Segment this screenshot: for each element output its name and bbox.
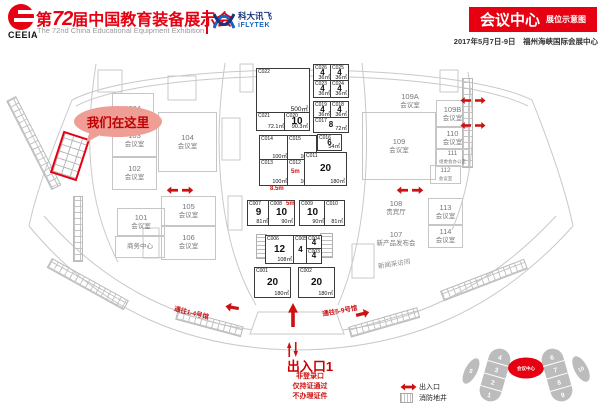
flow-arrow-left	[167, 187, 178, 195]
entrance-small-up-arrow	[287, 342, 292, 357]
corridor-width-5m-upper: 5m	[291, 169, 300, 175]
we-are-here-callout: 我们在这里	[74, 106, 162, 137]
legend: 出入口 消防地井	[400, 381, 447, 403]
floorplan-page: CEEIA 第72届中国教育装备展示会 The 72nd China Educa…	[0, 0, 600, 412]
to-halls-1-4-arrow	[225, 302, 240, 313]
firewell-icon	[400, 393, 413, 403]
flow-arrow-right	[182, 187, 193, 195]
header-divider	[206, 10, 208, 34]
iflytek-logo: 科大讯飞 iFLYTEK	[213, 11, 272, 31]
svg-text:会议中心: 会议中心	[517, 365, 535, 372]
entrance-1-notes: 非登录口 仅持证通过 不办理证件	[260, 372, 360, 402]
header: CEEIA 第72届中国教育装备展示会 The 72nd China Educa…	[0, 0, 600, 55]
venue-minimap: 5 4 3 2 1 会议中心 6 7 8 9 10	[455, 333, 600, 411]
entrance-note: 不办理证件	[260, 392, 360, 402]
minimap-hall-10: 10	[569, 354, 594, 385]
flow-arrow-left	[461, 122, 472, 129]
entrance-small-down-arrow	[294, 342, 299, 357]
sponsor-name-cn: 科大讯飞	[238, 12, 272, 21]
legend-entrance-label: 出入口	[419, 382, 440, 392]
date-venue: 2017年5月7日-9日 福州海峡国际会展中心	[430, 36, 598, 47]
corridor-width-5m-lower: 5m	[286, 201, 295, 207]
legend-entrance-row: 出入口	[400, 381, 447, 392]
entrance-note: 非登录口	[260, 372, 360, 382]
entrance-note: 仅持证通过	[260, 382, 360, 392]
flow-arrow-right	[475, 97, 486, 104]
entrance-up-arrow	[288, 303, 298, 327]
entrance-arrow-icon	[400, 383, 417, 391]
exhibition-title-en: The 72nd China Educational Equipment Exh…	[37, 26, 204, 35]
title-banner: 会议中心 展位示意图	[469, 7, 597, 32]
iflytek-x-icon	[213, 11, 235, 31]
minimap-hall-5: 5	[459, 356, 483, 386]
corridor-width-8-5m: 8.5m	[270, 186, 284, 192]
flow-arrow-right	[475, 122, 486, 129]
legend-firewell-row: 消防地井	[400, 392, 447, 403]
sponsor-name-en: iFLYTEK	[238, 22, 272, 30]
minimap-conference-center: 会议中心	[508, 358, 544, 379]
banner-title: 会议中心	[480, 9, 540, 30]
minimap-halls-1-4: 4 3 2 1	[477, 346, 513, 404]
ceeia-logo-icon	[8, 4, 34, 30]
flow-arrow-left	[461, 97, 472, 104]
banner-subtitle: 展位示意图	[546, 14, 586, 25]
flow-arrow-left	[397, 187, 408, 195]
minimap-halls-6-9: 6 7 8 9	[539, 346, 575, 404]
flow-arrow-right	[412, 187, 423, 195]
legend-firewell-label: 消防地井	[419, 393, 447, 403]
